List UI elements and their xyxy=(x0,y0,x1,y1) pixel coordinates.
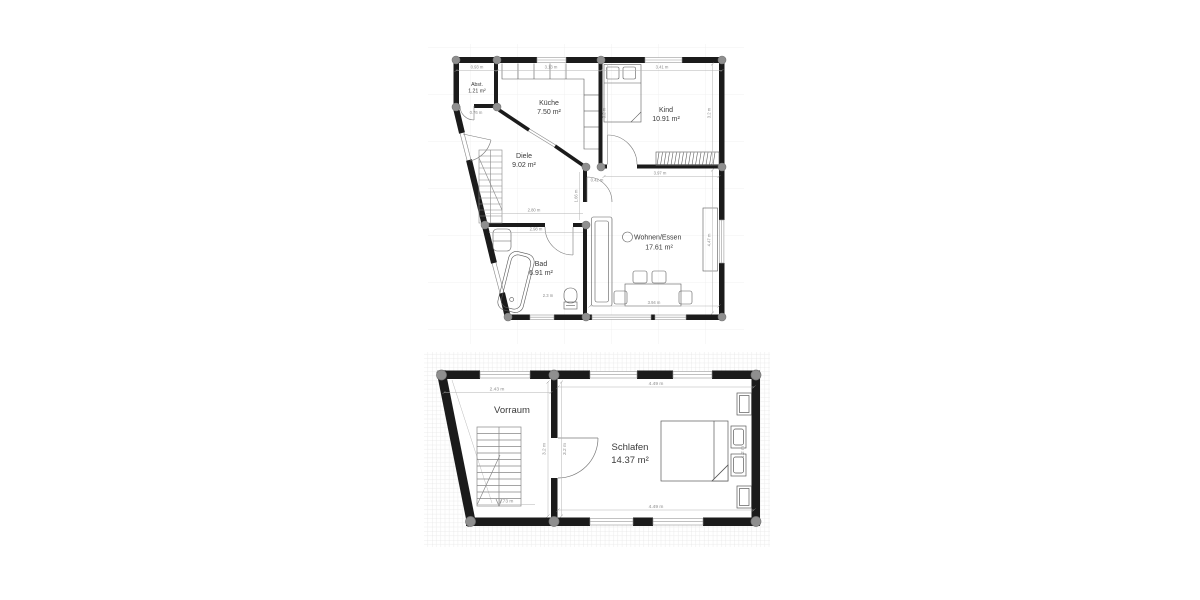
wall xyxy=(494,57,498,108)
window xyxy=(720,220,724,263)
room-label-vorraum: Vorraum xyxy=(494,405,530,416)
floor-plan-page: Abst. 1.21 m² Küche 7.50 m² Kind 10.91 m… xyxy=(0,0,1200,600)
upper-floor-plan: Abst. 1.21 m² Küche 7.50 m² Kind 10.91 m… xyxy=(428,44,744,344)
room-area-bad: 6.91 m² xyxy=(529,270,553,277)
column-dot xyxy=(718,163,726,171)
column-dot xyxy=(582,221,590,229)
room-label-kind: Kind xyxy=(659,107,673,114)
room-area-kind: 10.91 m² xyxy=(652,116,680,123)
wall xyxy=(651,315,655,321)
column-dot xyxy=(751,517,761,527)
wall xyxy=(637,371,673,380)
column-dot xyxy=(452,103,460,111)
window xyxy=(653,519,703,526)
room-area-kueche: 7.50 m² xyxy=(537,109,561,116)
floor-plan-drawing: Abst. 1.21 m² Küche 7.50 m² Kind 10.91 m… xyxy=(0,0,1200,600)
column-dot xyxy=(718,313,726,321)
column-dot xyxy=(751,370,761,380)
lower-floor-plan: Vorraum Schlafen 14.37 m² 2.43 m 4.49 m … xyxy=(424,352,770,547)
dim-label: 3.41 m xyxy=(656,65,669,70)
window xyxy=(590,519,633,526)
room-label-schlafen: Schlafen xyxy=(612,442,649,453)
window xyxy=(592,315,651,320)
dim-label: 4.49 m xyxy=(649,504,664,510)
dim-label: 1.73 m xyxy=(499,499,514,505)
wall xyxy=(566,57,645,63)
dim-label: 3.13 m xyxy=(545,65,558,70)
dim-label: 0.76 m xyxy=(470,110,483,115)
window xyxy=(590,372,637,379)
dim-label: 4.49 m xyxy=(649,381,664,387)
dim-label: 3.2 m xyxy=(542,443,548,455)
building-footprint xyxy=(441,373,758,524)
room-label-diele: Diele xyxy=(516,153,532,160)
column-dot xyxy=(549,370,559,380)
dim-label: 3.2 m xyxy=(562,443,568,455)
column-dot xyxy=(582,313,590,321)
wall xyxy=(583,223,587,317)
window xyxy=(645,58,682,63)
wall xyxy=(530,371,590,380)
window xyxy=(537,58,566,63)
column-dot xyxy=(452,56,460,64)
room-label-bad: Bad xyxy=(535,261,548,268)
wall xyxy=(752,371,761,527)
dim-label: 3.97 m xyxy=(654,171,667,176)
dim-label: 0.42 m xyxy=(591,178,604,183)
dim-label: 2.43 m xyxy=(490,387,505,393)
column-dot xyxy=(597,163,605,171)
room-label-wohnen: Wohnen/Essen xyxy=(634,235,681,242)
wall xyxy=(551,478,558,518)
column-dot xyxy=(597,56,605,64)
column-dot xyxy=(481,221,489,229)
dim-label: 3.2 m xyxy=(602,107,607,118)
wall xyxy=(719,57,725,220)
dim-label: 2.98 m xyxy=(530,227,543,232)
column-dot xyxy=(493,56,501,64)
window xyxy=(655,315,686,320)
dim-label: 3.94 m xyxy=(648,300,661,305)
dim-label: 4.47 m xyxy=(707,233,712,246)
window xyxy=(480,372,530,379)
room-area-diele: 9.02 m² xyxy=(512,162,536,169)
dim-label: 3.2 m xyxy=(707,107,712,118)
column-dot xyxy=(466,517,476,527)
window xyxy=(530,315,554,320)
column-dot xyxy=(493,103,501,111)
dim-label: 1.2 m xyxy=(740,446,746,458)
column-dot xyxy=(504,313,512,321)
room-area-wohnen: 17.61 m² xyxy=(645,245,673,252)
dim-label: 1.66 m xyxy=(574,189,579,202)
room-area-schlafen: 14.37 m² xyxy=(611,455,649,466)
wall xyxy=(637,165,725,169)
column-dot xyxy=(718,56,726,64)
window xyxy=(673,372,712,379)
dim-label: 2.3 m xyxy=(543,293,554,298)
room-label-kueche: Küche xyxy=(539,100,559,107)
room-label-abst: Abst. xyxy=(471,82,483,88)
wall xyxy=(551,379,558,438)
wall xyxy=(633,518,653,527)
wall xyxy=(583,167,587,202)
dim-label: 2.80 m xyxy=(528,208,541,213)
wall xyxy=(454,57,460,109)
wall xyxy=(719,263,725,320)
column-dot xyxy=(582,163,590,171)
dim-label: 0.93 m xyxy=(471,65,484,70)
column-dot xyxy=(549,517,559,527)
room-area-abst: 1.21 m² xyxy=(468,89,486,95)
wall xyxy=(466,518,590,527)
column-dot xyxy=(437,370,447,380)
